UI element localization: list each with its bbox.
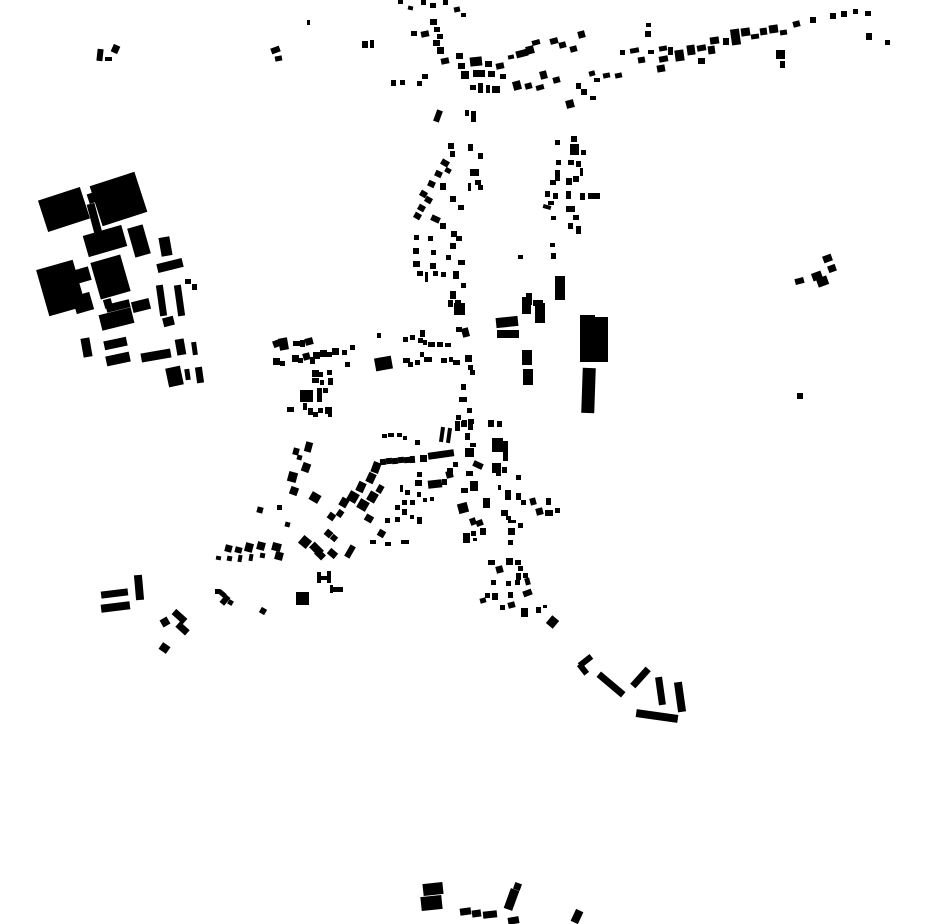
building-footprint [495, 62, 504, 70]
building-footprint [468, 183, 471, 191]
building-footprint [158, 236, 172, 257]
building-footprint [461, 283, 466, 288]
building-footprint [498, 485, 501, 490]
building-footprint [496, 316, 519, 328]
building-footprint [425, 272, 428, 282]
building-footprint [174, 285, 185, 317]
building-footprint [656, 64, 665, 72]
building-footprint [140, 348, 171, 362]
building-footprint [551, 253, 556, 259]
building-footprint [615, 72, 623, 78]
building-footprint [431, 250, 436, 255]
building-footprint [497, 421, 502, 427]
building-footprint [327, 512, 337, 522]
building-footprint [577, 30, 586, 39]
building-footprint [417, 271, 423, 276]
building-footprint [740, 27, 750, 36]
building-footprint [377, 333, 381, 338]
building-footprint [556, 160, 561, 165]
building-footprint [430, 19, 437, 25]
building-footprint [521, 608, 528, 617]
building-footprint [478, 83, 483, 93]
building-footprint [296, 592, 309, 605]
building-footprint [571, 909, 584, 924]
building-footprint [555, 276, 565, 300]
building-footprint [320, 380, 324, 385]
building-footprint [270, 46, 281, 55]
building-footprint [80, 337, 92, 357]
building-footprint [535, 84, 544, 91]
building-footprint [420, 330, 425, 337]
building-footprint [630, 47, 640, 53]
building-footprint [488, 71, 495, 77]
building-footprint [422, 74, 428, 79]
building-footprint [445, 343, 451, 347]
building-footprint [101, 601, 131, 612]
building-footprint [539, 70, 548, 80]
building-footprint [508, 540, 513, 545]
building-footprint [450, 151, 455, 157]
building-footprint [422, 882, 443, 896]
building-footprint [646, 23, 651, 27]
building-footprint [576, 226, 581, 234]
building-footprint [403, 337, 408, 342]
building-footprint [440, 223, 446, 229]
building-footprint [768, 24, 778, 33]
building-footprint [505, 490, 511, 500]
building-footprint [792, 20, 800, 28]
building-footprint [522, 297, 531, 314]
building-footprint [659, 45, 668, 51]
building-footprint [751, 33, 760, 39]
building-footprint [446, 255, 451, 260]
building-footprint [385, 518, 390, 523]
building-footprint [312, 378, 319, 383]
building-footprint [555, 140, 560, 145]
building-footprint [105, 352, 131, 367]
building-footprint [508, 54, 515, 59]
building-footprint [428, 479, 443, 488]
building-footprint [433, 40, 440, 46]
building-footprint [453, 271, 459, 279]
building-footprint [636, 709, 679, 723]
building-footprint [420, 30, 429, 38]
building-footprint [428, 236, 433, 241]
building-footprint [72, 292, 94, 314]
building-footprint [441, 272, 446, 277]
building-footprint [580, 168, 583, 176]
building-footprint [103, 337, 127, 351]
building-footprint [816, 275, 829, 287]
building-footprint [162, 316, 175, 327]
building-footprint [234, 546, 242, 554]
building-footprint [415, 360, 420, 365]
building-footprint [437, 34, 443, 39]
building-footprint [710, 36, 720, 44]
building-footprint [458, 63, 465, 69]
building-footprint [427, 180, 436, 188]
building-footprint [454, 303, 465, 315]
building-footprint [529, 497, 537, 505]
building-footprint [260, 553, 266, 559]
building-footprint [456, 53, 463, 59]
building-footprint [551, 216, 556, 220]
building-footprint [483, 910, 498, 918]
building-footprint [495, 565, 504, 574]
building-footprint [413, 212, 422, 221]
building-footprint [507, 601, 515, 609]
building-footprint [760, 28, 768, 36]
building-footprint [400, 80, 405, 85]
building-footprint [500, 605, 505, 610]
building-footprint [465, 448, 474, 457]
building-footprint [500, 74, 506, 79]
building-footprint [470, 481, 478, 491]
building-footprint [156, 258, 183, 273]
building-footprint [127, 224, 151, 257]
building-footprint [588, 70, 595, 76]
building-footprint [185, 279, 191, 284]
building-footprint [301, 462, 312, 473]
building-footprint [440, 158, 450, 167]
building-footprint [446, 428, 452, 443]
building-footprint [830, 13, 836, 19]
building-footprint [424, 196, 433, 205]
building-footprint [573, 176, 579, 182]
building-footprint [548, 201, 554, 205]
building-footprint [454, 6, 461, 12]
building-footprint [437, 342, 443, 347]
building-footprint [797, 393, 803, 399]
building-footprint [518, 255, 523, 259]
building-footprint [506, 558, 513, 565]
building-footprint [414, 235, 419, 240]
building-footprint [237, 555, 242, 563]
building-footprint [674, 49, 684, 61]
building-footprint [402, 509, 407, 515]
building-footprint [99, 307, 135, 331]
building-footprint [159, 642, 171, 654]
building-footprint [468, 144, 473, 151]
building-footprint [433, 109, 443, 122]
building-footprint [280, 361, 285, 366]
building-footprint [471, 111, 476, 122]
building-footprint [461, 384, 466, 390]
building-footprint [603, 72, 611, 78]
building-footprint [441, 358, 447, 363]
building-footprint [461, 13, 466, 17]
building-footprint [456, 236, 462, 241]
building-footprint [289, 486, 299, 496]
building-footprint [570, 144, 579, 155]
building-footprint [460, 907, 472, 915]
building-footprint [524, 577, 531, 585]
building-footprint [423, 498, 427, 502]
building-footprint [580, 193, 585, 200]
building-footprint [317, 388, 322, 402]
building-footprint [668, 47, 673, 55]
building-footprint [256, 541, 266, 551]
building-footprint [536, 607, 541, 613]
building-footprint [307, 20, 310, 25]
building-footprint [521, 500, 526, 505]
building-footprint [645, 31, 651, 37]
building-footprint [284, 521, 290, 527]
building-footprint [413, 248, 419, 254]
building-footprint [192, 284, 197, 290]
building-footprint [515, 560, 521, 565]
building-footprint [472, 460, 484, 470]
building-footprint [411, 31, 417, 36]
building-footprint [90, 254, 130, 299]
building-footprint [545, 510, 553, 516]
building-footprint [550, 180, 556, 185]
building-footprint [512, 80, 522, 91]
building-footprint [468, 424, 473, 430]
building-footprint [508, 528, 515, 535]
building-footprint [439, 427, 445, 442]
building-footprint [458, 260, 465, 265]
building-footprint [259, 607, 267, 615]
building-footprint [191, 342, 198, 356]
building-footprint [491, 580, 496, 585]
building-footprint [573, 215, 579, 220]
building-footprint [74, 266, 91, 283]
building-footprint [96, 49, 103, 62]
building-footprint [430, 497, 434, 501]
building-footprint [248, 554, 253, 562]
building-footprint [577, 662, 589, 675]
building-footprint [304, 441, 313, 452]
building-footprint [707, 46, 715, 55]
building-footprint [841, 11, 847, 17]
building-footprint [227, 556, 233, 562]
building-footprint [549, 37, 558, 45]
building-footprint [686, 44, 695, 55]
building-footprint [413, 261, 420, 267]
building-footprint [175, 622, 189, 636]
building-footprint [488, 560, 495, 565]
building-footprint [518, 566, 523, 571]
building-footprint [492, 86, 500, 93]
building-footprint [545, 191, 550, 197]
building-footprint [515, 580, 520, 585]
building-footprint [620, 50, 625, 55]
building-footprint [430, 263, 436, 269]
building-footprint [215, 589, 220, 594]
building-footprint [134, 575, 144, 601]
building-footprint [385, 542, 391, 546]
building-footprint [780, 30, 788, 36]
building-footprint [465, 433, 470, 440]
building-footprint [175, 338, 187, 355]
building-footprint [450, 243, 456, 249]
building-footprint [328, 378, 333, 385]
building-footprint [776, 50, 785, 59]
building-footprint [448, 143, 454, 149]
building-footprint [345, 362, 350, 367]
building-footprint [461, 327, 470, 338]
building-footprint [508, 592, 513, 598]
building-footprint [479, 597, 486, 603]
building-footprint [581, 150, 586, 155]
building-footprint [466, 471, 473, 476]
building-footprint [810, 17, 816, 23]
building-footprint [596, 672, 625, 698]
building-footprint [327, 370, 332, 375]
building-footprint [400, 485, 403, 492]
building-footprint [370, 461, 381, 474]
building-footprint [365, 472, 376, 484]
building-footprint [565, 99, 575, 109]
building-footprint [638, 56, 646, 63]
building-footprint [594, 78, 600, 82]
building-footprint [456, 415, 461, 420]
building-footprint [581, 368, 596, 413]
building-footprint [516, 573, 521, 580]
building-footprint [568, 223, 573, 229]
building-footprint [568, 160, 574, 165]
building-footprint [543, 605, 547, 608]
building-footprint [318, 408, 323, 413]
building-footprint [462, 420, 467, 427]
building-footprint [287, 407, 294, 412]
building-footprint [336, 509, 345, 518]
building-footprint [256, 506, 263, 513]
building-footprint [723, 38, 729, 45]
building-footprint [571, 136, 577, 142]
building-footprint [518, 523, 523, 528]
building-footprint [566, 206, 575, 212]
building-footprint [417, 492, 421, 497]
building-footprint [455, 421, 460, 431]
building-footprint [227, 599, 234, 606]
building-footprint [504, 888, 520, 911]
building-footprint [410, 456, 415, 463]
building-footprint [473, 538, 477, 541]
building-footprint [417, 81, 422, 86]
building-footprint [461, 71, 469, 79]
building-footprint [555, 508, 560, 513]
building-footprint [442, 479, 447, 485]
building-footprint [697, 44, 707, 51]
building-footprint [780, 61, 785, 68]
building-footprint [630, 667, 651, 689]
building-footprint [448, 300, 453, 307]
building-footprint [885, 40, 890, 45]
building-footprint [450, 291, 456, 299]
building-footprint [478, 153, 483, 159]
building-footprint [866, 33, 872, 40]
building-footprint [546, 498, 551, 505]
building-footprint [415, 440, 420, 445]
building-footprint [524, 82, 532, 90]
building-footprint [453, 462, 458, 467]
building-footprint [318, 372, 323, 377]
building-footprint [497, 330, 519, 338]
building-footprint [420, 895, 442, 911]
building-footprint [391, 80, 396, 86]
building-footprint [430, 3, 436, 8]
building-footprint [553, 193, 558, 199]
building-footprint [370, 540, 376, 544]
building-footprint [450, 196, 456, 202]
building-footprint [506, 581, 511, 586]
building-footprint [244, 542, 254, 553]
building-footprint [156, 285, 167, 317]
building-footprint [342, 350, 347, 355]
building-footprint [588, 193, 600, 199]
building-footprint [298, 358, 303, 363]
building-footprint [224, 544, 233, 553]
building-footprint [165, 366, 184, 388]
building-footprint [300, 390, 313, 402]
building-footprint [296, 454, 302, 460]
building-footprint [443, 0, 448, 5]
building-footprint [420, 455, 427, 462]
building-footprint [429, 342, 435, 347]
building-footprint [465, 355, 472, 362]
building-footprint [105, 57, 112, 61]
building-footprint [355, 481, 366, 493]
building-footprint [595, 317, 608, 362]
building-footprint [648, 50, 654, 54]
building-footprint [485, 61, 492, 67]
building-footprint [424, 357, 432, 362]
building-footprint [566, 178, 572, 185]
building-footprint [440, 183, 446, 190]
building-footprint [277, 505, 282, 510]
building-footprint [320, 576, 328, 580]
building-footprint [492, 593, 498, 600]
building-footprint [370, 40, 374, 48]
building-footprint [507, 916, 519, 924]
building-footprint [330, 534, 338, 542]
building-footprint [488, 420, 494, 427]
building-footprint [496, 470, 501, 476]
building-footprint [459, 397, 467, 402]
building-footprint [405, 490, 410, 495]
building-footprint [531, 39, 540, 46]
building-footprint [417, 472, 422, 477]
building-footprint [525, 45, 535, 55]
building-footprint [278, 337, 289, 350]
building-footprint [552, 76, 560, 84]
building-footprint [382, 434, 387, 438]
building-footprint [131, 298, 151, 313]
building-footprint [655, 677, 666, 706]
building-footprint [853, 9, 858, 14]
building-footprint [794, 277, 804, 285]
building-footprint [274, 551, 284, 561]
building-footprint [576, 161, 581, 167]
building-footprint [445, 470, 454, 479]
building-footprint [388, 433, 394, 437]
building-footprint [83, 225, 128, 257]
building-footprint [827, 264, 837, 273]
building-footprint [275, 55, 283, 61]
building-footprint [410, 500, 415, 505]
building-footprint [38, 187, 90, 232]
building-footprint [160, 617, 171, 628]
building-footprint [402, 500, 407, 505]
building-footprint [374, 356, 393, 372]
building-footprint [485, 593, 490, 598]
building-footprint [287, 471, 298, 483]
building-footprint [566, 191, 571, 199]
building-footprint [516, 475, 521, 480]
building-footprint [470, 85, 476, 90]
